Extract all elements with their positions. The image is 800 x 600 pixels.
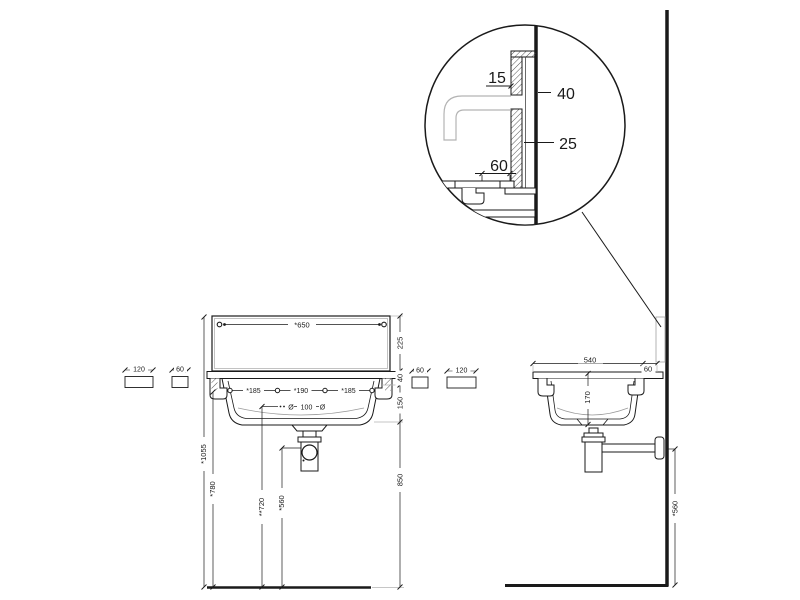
dim-100-label: 100 [301, 405, 313, 412]
detail-dim-40-label: 40 [557, 86, 575, 103]
tap-hole-mark [275, 388, 279, 392]
dim-185-left-label: *185 [246, 388, 261, 395]
dim-540-label: 540 [584, 356, 597, 365]
detail-dim-15-label: 15 [488, 70, 506, 87]
dim-780-label: *780 [208, 481, 217, 496]
dim-225-label: 225 [396, 337, 405, 350]
detail-dim-25-label: 25 [559, 136, 577, 153]
dim-60-right-label: 60 [416, 368, 424, 375]
dim-60-left-label: 60 [176, 367, 184, 374]
wall-flange [655, 437, 664, 459]
dim-185-right-label: *185 [341, 388, 356, 395]
dim-650-label: *650 [294, 321, 309, 330]
dim-560-front-label: *560 [277, 495, 286, 510]
sink-rim-front [207, 372, 396, 379]
dim-120-left-label: 120 [133, 367, 145, 374]
tap-hole-mark [370, 388, 374, 392]
dim-720-label: **720 [257, 498, 266, 516]
drain-symbol-right: Ø [320, 405, 326, 412]
tap-hole-mark [323, 388, 327, 392]
dim-tap-holes: *185 *190 *185 [228, 386, 374, 396]
mounting-hole-left [217, 322, 222, 327]
dim-560-side-label: *560 [671, 501, 680, 516]
hatch-left [212, 379, 218, 391]
drain-symbol-left: Ø [288, 405, 294, 412]
dim-1055-label: *1055 [199, 444, 208, 464]
tap-hole-mark [228, 388, 232, 392]
dim-40-label: 40 [396, 374, 405, 382]
hatch-right [385, 379, 391, 391]
mounting-hole-right [382, 322, 387, 327]
dim-60-wall-gap-label: 60 [644, 365, 652, 374]
detail-dim-60-label: 60 [490, 158, 508, 175]
dim-120-right-label: 120 [456, 368, 468, 375]
dim-170-label: 170 [583, 391, 592, 404]
basin-technical-drawing: 540 60 170 *560 [0, 0, 800, 600]
dim-150-label: 150 [396, 397, 405, 410]
dim-850-label: 850 [396, 474, 405, 487]
dim-190-label: *190 [294, 388, 309, 395]
